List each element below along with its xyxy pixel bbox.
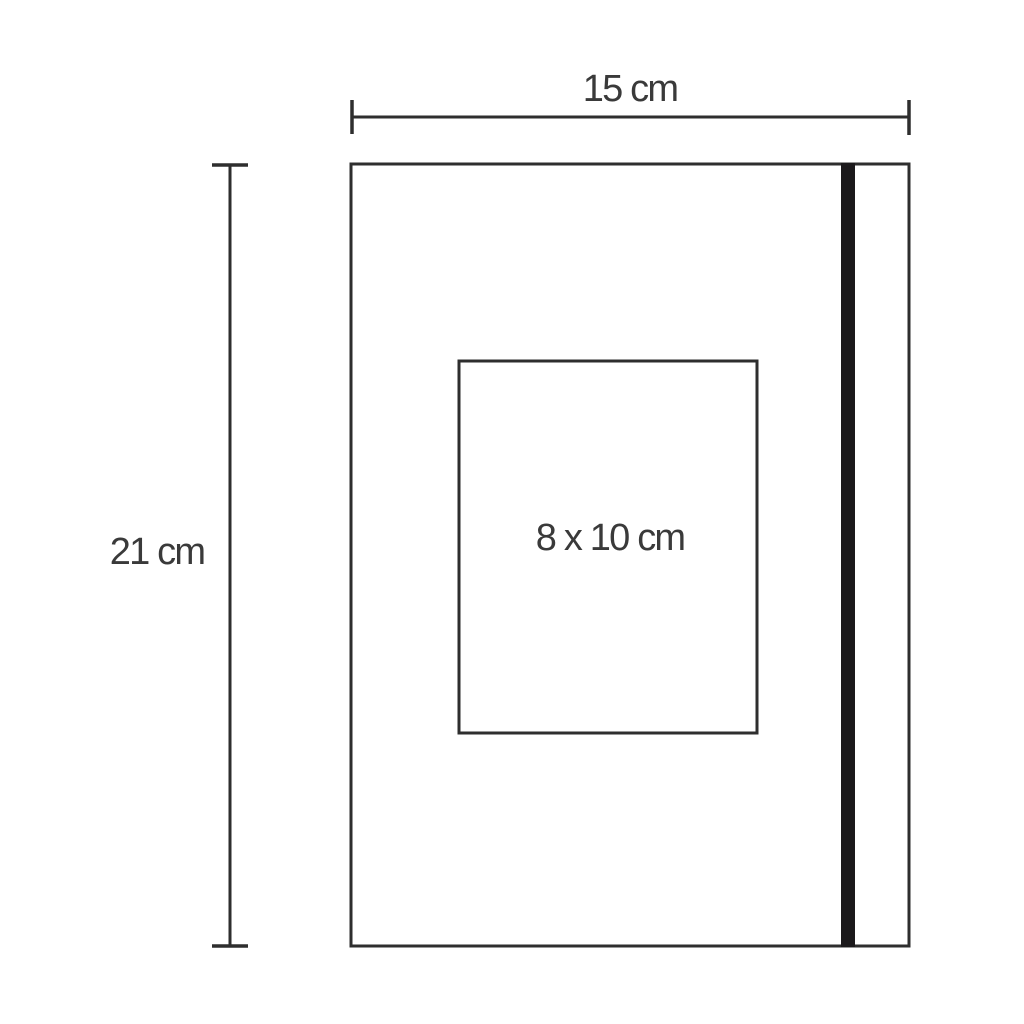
svg-text:8 x 10 cm: 8 x 10 cm [536, 517, 685, 559]
svg-text:15 cm: 15 cm [583, 68, 678, 110]
svg-text:21 cm: 21 cm [110, 531, 205, 573]
